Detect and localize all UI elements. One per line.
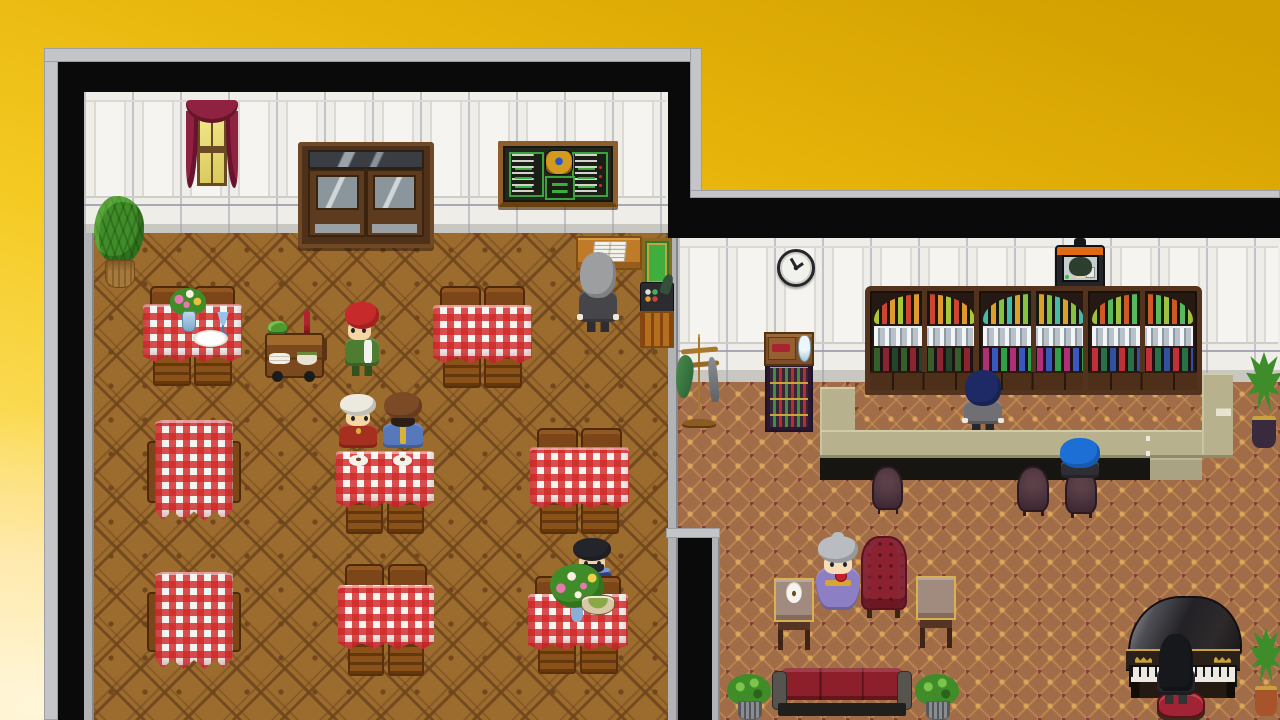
- pianist-npc-hair: [1159, 634, 1193, 691]
- table-top-middle-cloth: [433, 305, 532, 364]
- bar-chair-1[interactable]: [869, 466, 906, 516]
- diner-elder-npc-accent: [356, 428, 361, 434]
- tv-portrait-phair: [1069, 257, 1092, 277]
- bar-patron-npc[interactable]: [1060, 438, 1100, 484]
- grandma-npc-beard: [826, 566, 851, 577]
- wine-cabinet-3-r3: [1092, 348, 1192, 372]
- bar-chair-2[interactable]: [1014, 466, 1052, 518]
- lounge-sofa: [772, 668, 912, 720]
- plant-bar-end-pot: [1252, 416, 1276, 448]
- coat-rack-umb: [707, 356, 720, 402]
- tv-portrait: [1055, 238, 1105, 290]
- menu-chalkboard-emb: [545, 150, 573, 174]
- table-bottom-left: [147, 572, 241, 672]
- coat-rack: [676, 334, 722, 428]
- wine-cabinet-2-r3: [983, 348, 1083, 372]
- menu-chalkboard-pc: [545, 176, 575, 200]
- host-npc-hair: [580, 252, 617, 298]
- potted-plant-restaurant: [94, 196, 144, 288]
- diner-elder-npc-beard: [347, 419, 369, 428]
- side-table-with-coffee: [774, 578, 814, 650]
- waitress-npc-legs: [352, 366, 372, 376]
- table-top-middle: [433, 286, 532, 384]
- grandma-npc[interactable]: [816, 536, 860, 610]
- waitress-npc-accent: [364, 340, 372, 362]
- flower-vase: [170, 288, 206, 332]
- cash-register-stand[interactable]: [640, 238, 674, 348]
- restaurant-left-trim: [84, 233, 94, 720]
- frame-black-top: [58, 62, 702, 92]
- soup-bowl: [581, 595, 615, 615]
- bar-patron-npc-hair: [1060, 438, 1100, 468]
- bar-counter-top[interactable]: [820, 430, 1202, 458]
- game-viewport: [0, 0, 1280, 720]
- bartender-npc[interactable]: [963, 370, 1003, 432]
- wine-cabinet-2-r2: [983, 326, 1083, 347]
- double-door[interactable]: [298, 142, 434, 248]
- wine-display-stand: [764, 332, 814, 432]
- wine-cabinet-1-r2: [874, 326, 974, 347]
- plant-bar-end-leaves: [1246, 352, 1280, 421]
- serving-cart-bottle: [304, 310, 310, 334]
- table-bottom-middle-cloth: [338, 585, 434, 650]
- frame-gray-top: [44, 48, 702, 62]
- plant-piano-corner-leaves: [1250, 628, 1280, 691]
- grandma-npc-accent: [825, 580, 851, 585]
- table-mid-right: [530, 428, 629, 530]
- curtained-window-curtR: [226, 111, 238, 188]
- dinner-plate: [193, 330, 228, 347]
- side-table-with-coffee-top: [774, 578, 814, 622]
- room-divider-column-trim: [712, 538, 720, 720]
- pianist-npc-legs: [1165, 694, 1187, 704]
- diner-elder-npc-hair: [340, 394, 377, 416]
- menu-chalkboard-pr: [572, 152, 608, 197]
- coat-rack-coat: [674, 354, 695, 399]
- wine-cabinet-3: [1083, 286, 1202, 395]
- waitress-npc-beard: [352, 332, 372, 343]
- double-door-dr: [366, 169, 424, 238]
- plant-sofa-left-pot: [738, 701, 763, 720]
- waitress-npc[interactable]: [344, 302, 380, 376]
- wine-cabinet-2-r1: [983, 294, 1083, 324]
- plant-sofa-right: [915, 674, 959, 720]
- menu-chalkboard[interactable]: [498, 141, 618, 207]
- table-mid-left: [147, 420, 241, 524]
- serving-cart-bowl: [297, 352, 317, 365]
- table-bottom-left-clothv: [155, 572, 232, 672]
- flower-vase-vessel: [182, 311, 197, 332]
- pianist-npc[interactable]: [1156, 634, 1196, 704]
- wall-clock: [777, 249, 815, 287]
- frame-black-lounge-top: [668, 198, 1280, 238]
- bar-chair-2-back: [1017, 466, 1049, 512]
- diner-monk-npc-beard: [391, 418, 415, 428]
- cash-register-stand-cab: [640, 311, 674, 348]
- waitress-npc-hair: [345, 302, 378, 329]
- diner-monk-npc-hair: [384, 392, 423, 419]
- coat-rack-base: [682, 419, 717, 428]
- serving-cart-salad: [268, 321, 288, 334]
- wine-cabinet-3-r2: [1092, 326, 1192, 347]
- table-mid-right-cloth: [530, 447, 629, 508]
- curtained-window-glass: [197, 113, 227, 186]
- potted-plant-restaurant-pot: [105, 260, 135, 288]
- wine-display-stand-box: [768, 337, 796, 360]
- lounge-sofa-back: [780, 668, 903, 700]
- potted-plant-restaurant-leaves: [94, 196, 144, 264]
- table-mid-left-clothv: [155, 420, 232, 524]
- serving-cart: [262, 310, 332, 386]
- double-door-header: [308, 150, 423, 169]
- frame-gray-left: [44, 48, 58, 720]
- frame-gray-lounge-top: [690, 190, 1280, 198]
- plant-sofa-right-pot: [926, 701, 951, 720]
- diner-monk-npc-accent: [400, 424, 405, 444]
- frame-gray-right-upper: [690, 48, 702, 198]
- bearded-diner-npc-hair: [573, 538, 612, 561]
- plant-piano-corner-pot: [1255, 686, 1277, 716]
- room-divider-column: [678, 538, 712, 720]
- plant-bar-end: [1246, 352, 1280, 448]
- wine-display-stand-body: [765, 362, 813, 432]
- wine-cabinet-1-r3: [874, 348, 974, 372]
- frame-black-left: [58, 62, 84, 720]
- plant-piano-corner: [1250, 628, 1280, 716]
- double-door-dl: [308, 169, 366, 238]
- menu-chalkboard-pl: [509, 152, 545, 197]
- host-npc-legs: [587, 321, 609, 332]
- curtained-window: [186, 100, 238, 194]
- bartender-npc-hair: [965, 370, 1002, 406]
- diners-table: [336, 446, 434, 532]
- host-npc[interactable]: [578, 252, 618, 332]
- side-table-right-top: [916, 576, 956, 620]
- wine-cabinet-3-r1: [1092, 294, 1192, 324]
- lounge-armchair: [859, 536, 909, 618]
- wine-display-stand-glass: [798, 335, 811, 362]
- room-divider-cap: [666, 528, 720, 538]
- lounge-sofa-base: [778, 703, 907, 715]
- diners-table-cup1: [349, 455, 369, 466]
- side-table-right: [916, 576, 956, 648]
- wine-cabinet-1-r1: [874, 294, 974, 324]
- grandma-npc-hair: [818, 536, 858, 563]
- table-bottom-middle: [338, 564, 434, 672]
- diners-table-cup2: [393, 455, 413, 466]
- wine-cabinet-3-r4: [1088, 371, 1197, 390]
- serving-cart-plates: [269, 353, 290, 364]
- plant-sofa-left: [727, 674, 771, 720]
- bar-chair-1-back: [872, 466, 903, 510]
- bar-counter-flap: [1150, 458, 1202, 480]
